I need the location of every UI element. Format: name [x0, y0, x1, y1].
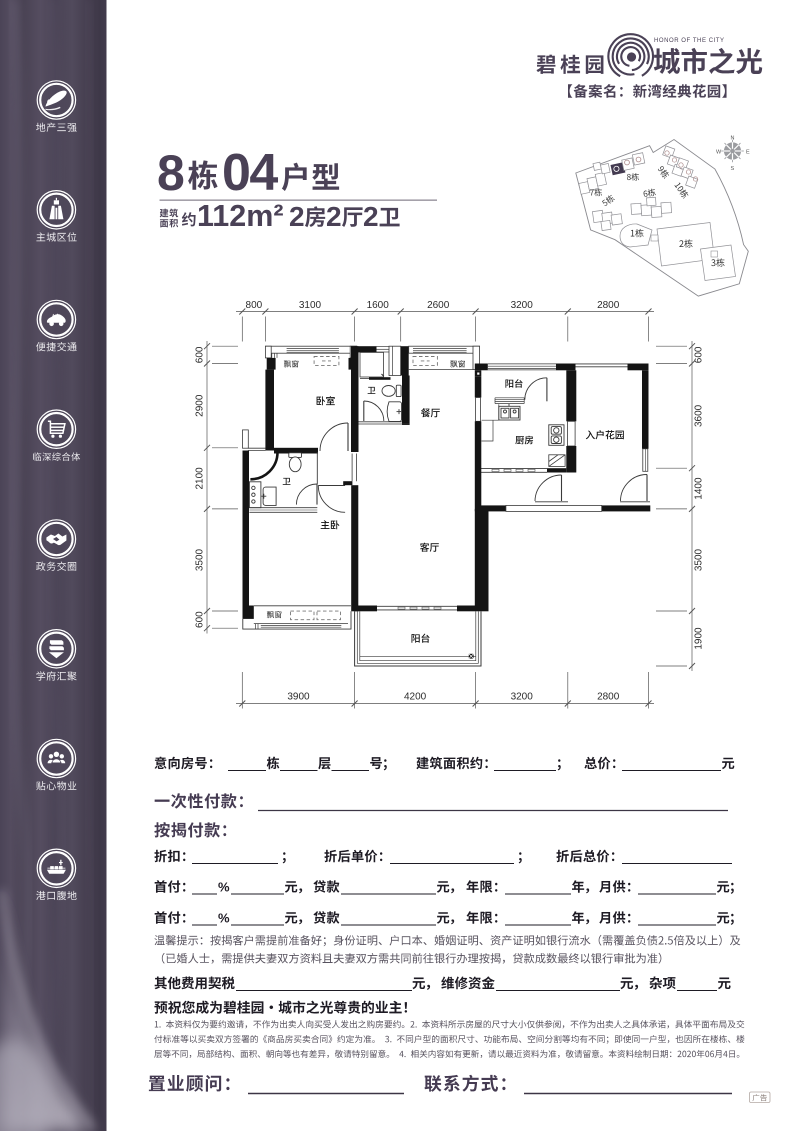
svg-text:S: S — [731, 166, 735, 172]
svg-text:3600: 3600 — [694, 404, 705, 427]
svg-text:3500: 3500 — [195, 548, 206, 571]
svg-text:W: W — [716, 150, 722, 156]
svg-text:2: 2 — [363, 201, 379, 232]
svg-text:N: N — [731, 136, 735, 142]
svg-text:600: 600 — [195, 611, 206, 628]
svg-text:2800: 2800 — [597, 300, 620, 311]
svg-text:%: % — [218, 911, 230, 926]
svg-text:4200: 4200 — [404, 692, 427, 703]
svg-text:04: 04 — [222, 144, 278, 202]
svg-text:2: 2 — [326, 201, 342, 232]
svg-text:2900: 2900 — [195, 394, 206, 417]
svg-text:%: % — [218, 880, 230, 895]
svg-text:1400: 1400 — [694, 477, 705, 500]
svg-text:8: 8 — [157, 145, 185, 201]
svg-text:3900: 3900 — [287, 692, 310, 703]
svg-text:1600: 1600 — [367, 300, 390, 311]
svg-text:2600: 2600 — [427, 300, 450, 311]
svg-text:800: 800 — [246, 300, 263, 311]
svg-text:3200: 3200 — [511, 692, 534, 703]
svg-text:3500: 3500 — [694, 548, 705, 571]
svg-text:HONOR OF THE CITY: HONOR OF THE CITY — [654, 38, 725, 44]
svg-text:2: 2 — [289, 201, 305, 232]
svg-text:2100: 2100 — [195, 467, 206, 490]
svg-text:112m²: 112m² — [197, 199, 283, 233]
svg-text:1900: 1900 — [694, 627, 705, 650]
svg-text:600: 600 — [694, 346, 705, 363]
svg-text:E: E — [746, 150, 750, 156]
svg-text:600: 600 — [195, 346, 206, 363]
svg-text:2800: 2800 — [597, 692, 620, 703]
svg-text:3100: 3100 — [299, 300, 322, 311]
svg-text:3200: 3200 — [511, 300, 534, 311]
